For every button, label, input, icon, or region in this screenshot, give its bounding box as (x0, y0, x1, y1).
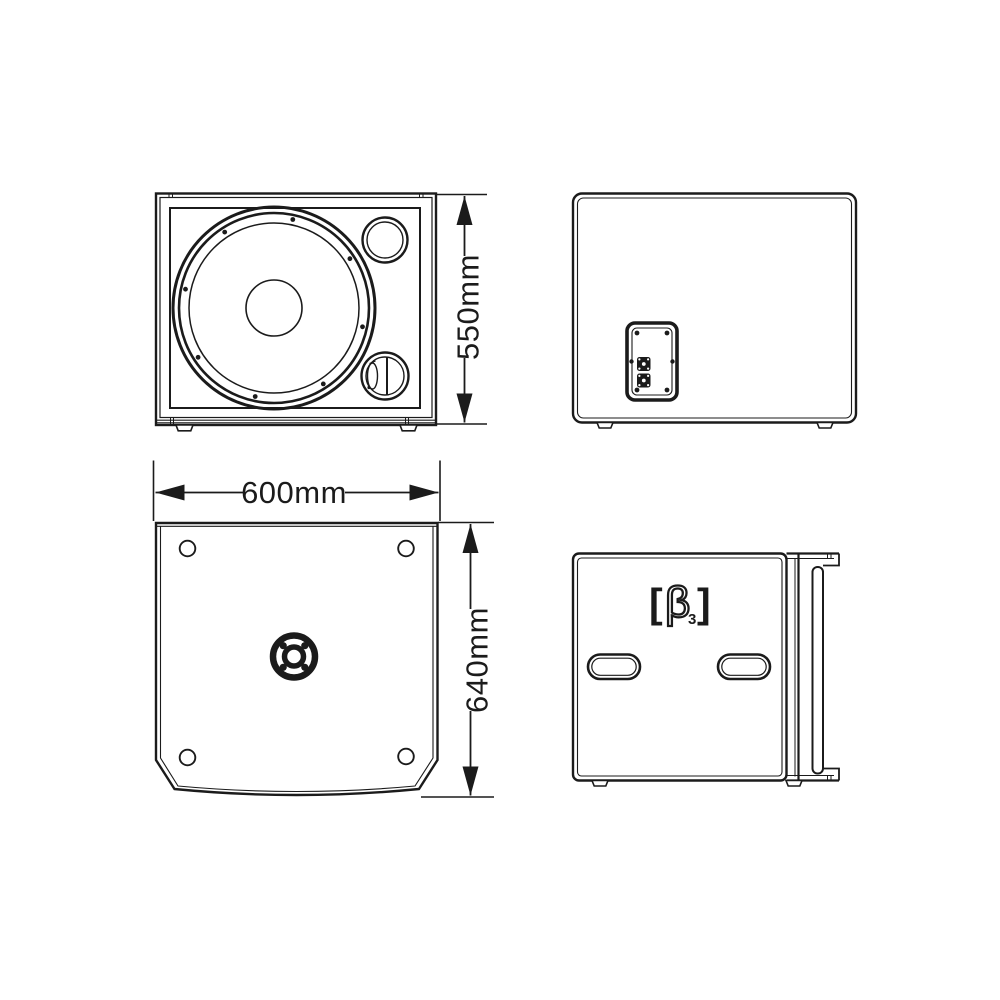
cabinet-outline (156, 523, 438, 795)
dimension-depth: 640mm (421, 523, 495, 798)
dimension-width: 600mm (154, 461, 441, 522)
pole-mount-socket (273, 636, 315, 678)
dimension-width-label: 600mm (241, 475, 347, 510)
screw-dot (290, 217, 295, 222)
foot (176, 425, 193, 431)
foot (592, 781, 608, 787)
cabinet-outline (573, 194, 856, 423)
mounting-hole (180, 750, 196, 766)
side-view-rear (573, 194, 856, 429)
woofer-screws (183, 217, 365, 399)
screw-dot (360, 324, 365, 329)
panel-screw (665, 388, 670, 393)
arrowhead-left (156, 485, 185, 501)
panel-screw (670, 359, 674, 363)
bass-port-top (363, 218, 408, 263)
arrowhead-right (410, 485, 439, 501)
logo-beta: β (665, 578, 690, 627)
logo-bracket-right: ] (697, 580, 711, 626)
logo-bracket-left: [ (649, 580, 663, 626)
dimension-height-label: 550mm (451, 254, 486, 360)
baffle-top-cap (787, 554, 840, 566)
panel-screw (629, 359, 633, 363)
grille-channel (813, 567, 824, 774)
handle-slot-right (718, 655, 770, 680)
speaker-technical-drawing: 550mm (0, 0, 1000, 1000)
woofer-rim-outer (173, 207, 375, 409)
arrowhead-up (463, 524, 479, 553)
side-view-logo: [ β 3 ] (573, 554, 839, 787)
panel-screw (635, 388, 640, 393)
screw-dot (222, 230, 227, 235)
cabinet-inner-line (161, 526, 434, 791)
screw-dot (183, 287, 188, 292)
pole-mount-ring (273, 636, 315, 678)
cabinet-inner-line (160, 198, 432, 418)
front-view (156, 194, 436, 431)
dimension-depth-label: 640mm (460, 607, 495, 713)
handle-slot-left (588, 655, 640, 680)
panel-screw (665, 331, 670, 336)
speakon-jack (637, 357, 651, 371)
arrowhead-down (463, 767, 479, 796)
panel-frame (627, 323, 677, 400)
foot (400, 425, 417, 431)
arrowhead-up (457, 196, 473, 225)
screw-dot (321, 382, 326, 387)
dimension-height: 550mm (436, 195, 487, 425)
woofer-rim-inner (179, 213, 369, 403)
screw-dot (253, 394, 258, 399)
foot (786, 781, 802, 787)
screw-dot (196, 355, 201, 360)
panel-screw (635, 331, 640, 336)
mounting-hole (180, 541, 196, 557)
woofer-surround (189, 223, 359, 393)
dust-cap (246, 280, 302, 336)
arrowhead-down (457, 394, 473, 423)
connector-panel (627, 323, 677, 400)
speakon-jack (637, 374, 651, 388)
baffle-outline (170, 208, 420, 408)
mounting-hole (398, 749, 414, 765)
foot (817, 423, 833, 429)
woofer (173, 207, 375, 409)
top-view (156, 523, 438, 795)
drawing-svg: 550mm (0, 0, 1000, 1000)
foot (597, 423, 613, 429)
bass-port-bottom (362, 353, 409, 400)
cabinet-inner-line (578, 198, 852, 418)
screw-dot (348, 256, 353, 261)
logo-subscript: 3 (688, 611, 696, 628)
beta3-logo: [ β 3 ] (649, 578, 711, 628)
pole-mount-hub (285, 647, 304, 666)
mounting-hole (398, 541, 414, 557)
